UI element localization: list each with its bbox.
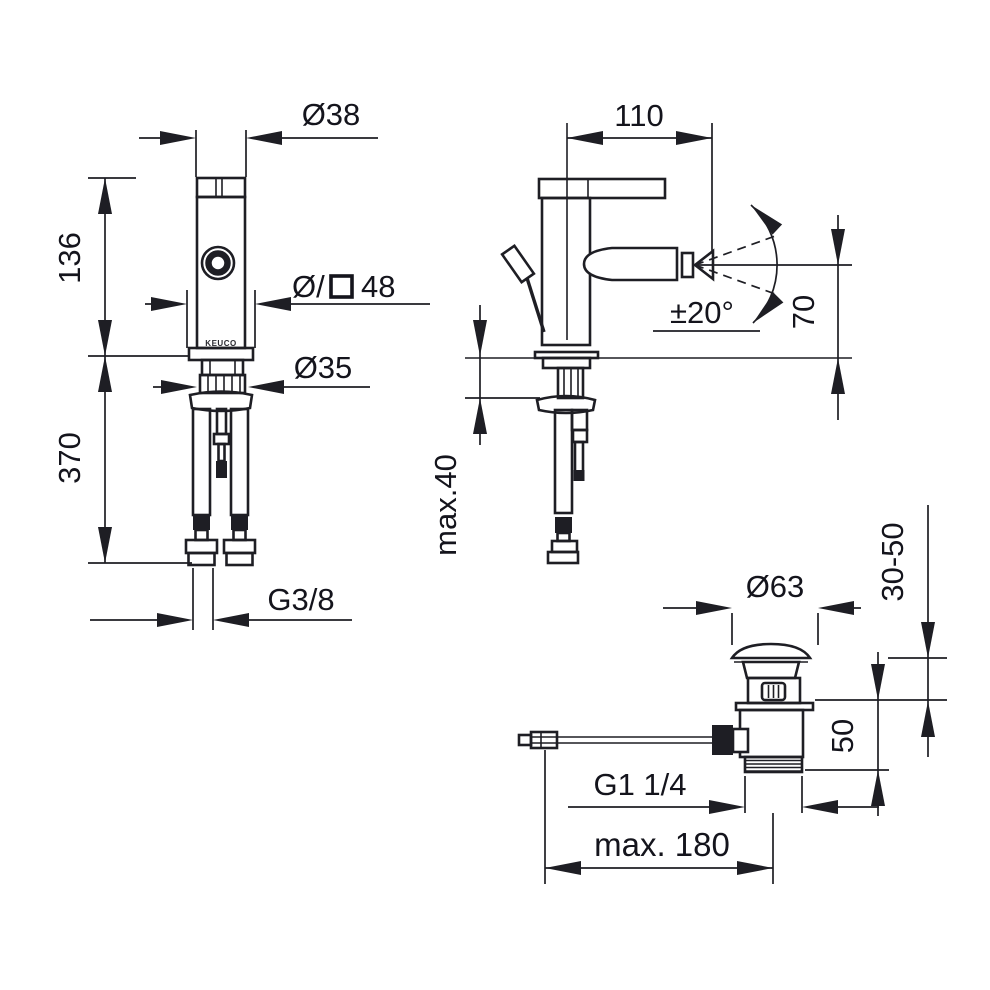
popup-plug-cap — [732, 644, 810, 658]
arrowhead — [246, 131, 282, 145]
arrowhead — [567, 131, 603, 145]
front-view-part: KEUCO — [186, 178, 255, 565]
aerator-neck — [682, 253, 693, 277]
arrowhead — [921, 701, 935, 737]
arrowhead — [255, 297, 291, 311]
arrowhead — [213, 613, 249, 627]
popup-rod-side — [572, 410, 587, 481]
dim-label-side-spout-reach: 110 — [614, 98, 663, 133]
arrowhead — [473, 320, 487, 356]
arrowhead — [161, 380, 197, 394]
arrowhead — [748, 293, 783, 328]
popup-rod-front — [214, 409, 229, 478]
arrowhead — [98, 356, 112, 392]
aerator-inner-ring — [209, 254, 228, 273]
arrowhead — [157, 613, 193, 627]
dim-label-front-base-size: 48 — [361, 269, 395, 304]
arrowhead — [737, 861, 773, 875]
arrowhead — [871, 664, 885, 700]
dim-label-side-spout-height: 70 — [786, 295, 821, 329]
dim-label-front-shank-diameter: Ø35 — [294, 350, 353, 385]
dimension-hose-thread: G3/8 — [90, 568, 352, 630]
arrowhead — [818, 601, 854, 615]
arrowhead — [473, 398, 487, 434]
arrowhead — [871, 770, 885, 806]
dimension-base-size: Ø/ 48 — [145, 269, 430, 348]
spout — [584, 248, 677, 280]
dimension-waste-height: 50 — [805, 652, 889, 816]
rod-coupling-block — [712, 725, 733, 755]
bidet-faucet-dimension-drawing: KEUCO — [0, 0, 990, 990]
side-view-dimensions: 110 ±20° 70 max.40 — [428, 98, 852, 556]
arrowhead — [98, 178, 112, 214]
faucet-cap — [197, 178, 245, 197]
arrowhead — [802, 800, 838, 814]
side-view-part — [465, 123, 852, 563]
dim-label-drain-rod-reach: max. 180 — [594, 826, 730, 863]
square-icon — [331, 276, 352, 297]
arrowhead — [709, 800, 745, 814]
dimension-deck-thickness: max.40 — [428, 305, 540, 556]
base-step-side — [543, 358, 590, 368]
base-cone — [202, 360, 243, 375]
dimension-outlet-thread: G1 1/4 — [568, 767, 879, 814]
popup-knob — [502, 246, 534, 282]
arrowhead — [98, 320, 112, 356]
arrowhead — [831, 229, 845, 265]
dim-label-drain-cap-diameter: Ø63 — [746, 569, 805, 604]
dimension-cap-diameter: Ø63 — [663, 569, 861, 645]
arrowhead — [676, 131, 712, 145]
supply-hose-right — [224, 409, 255, 565]
waste-lower-body — [740, 710, 803, 757]
dim-label-drain-waste-height: 50 — [825, 719, 860, 753]
dimension-top-diameter: Ø38 — [139, 97, 378, 177]
drain-view-dimensions: Ø63 30-50 50 G1 1/4 max. 180 — [545, 505, 947, 884]
dim-label-front-hose-370: 370 — [52, 432, 87, 484]
arrowhead — [151, 297, 187, 311]
arrowhead — [696, 601, 732, 615]
brand-logo-text: KEUCO — [205, 339, 236, 348]
dim-label-drain-clamp-range: 30-50 — [875, 522, 910, 601]
arrowhead — [921, 622, 935, 658]
arrowhead — [160, 131, 196, 145]
dim-label-side-swivel-angle: ±20° — [670, 295, 734, 330]
supply-hose-left — [186, 409, 217, 565]
lever-handle — [539, 179, 665, 198]
horizontal-pull-rod — [519, 732, 712, 748]
arrowhead — [545, 861, 581, 875]
drain-view-part — [519, 644, 813, 772]
plug-neck — [743, 662, 799, 678]
dim-label-front-hose-thread: G3/8 — [267, 582, 334, 617]
faucet-body-side — [542, 198, 590, 345]
arrowhead — [98, 527, 112, 563]
rod-coupling-nut — [733, 729, 748, 752]
arrowhead — [831, 358, 845, 394]
dimension-spout-height: 70 — [786, 215, 845, 420]
dim-label-drain-outlet-thread: G1 1/4 — [593, 767, 686, 802]
dim-label-side-deck-thickness: max.40 — [428, 454, 463, 556]
technical-drawing-page: KEUCO — [0, 0, 990, 990]
dimension-heights: 136 370 — [52, 178, 192, 563]
dim-label-front-base-prefix: Ø/ — [292, 269, 325, 304]
dim-label-front-top-diameter: Ø38 — [302, 97, 361, 132]
dim-label-front-height-136: 136 — [52, 232, 87, 284]
outlet-thread — [745, 757, 802, 772]
arrowhead — [248, 380, 284, 394]
base-plate-front — [189, 348, 253, 360]
